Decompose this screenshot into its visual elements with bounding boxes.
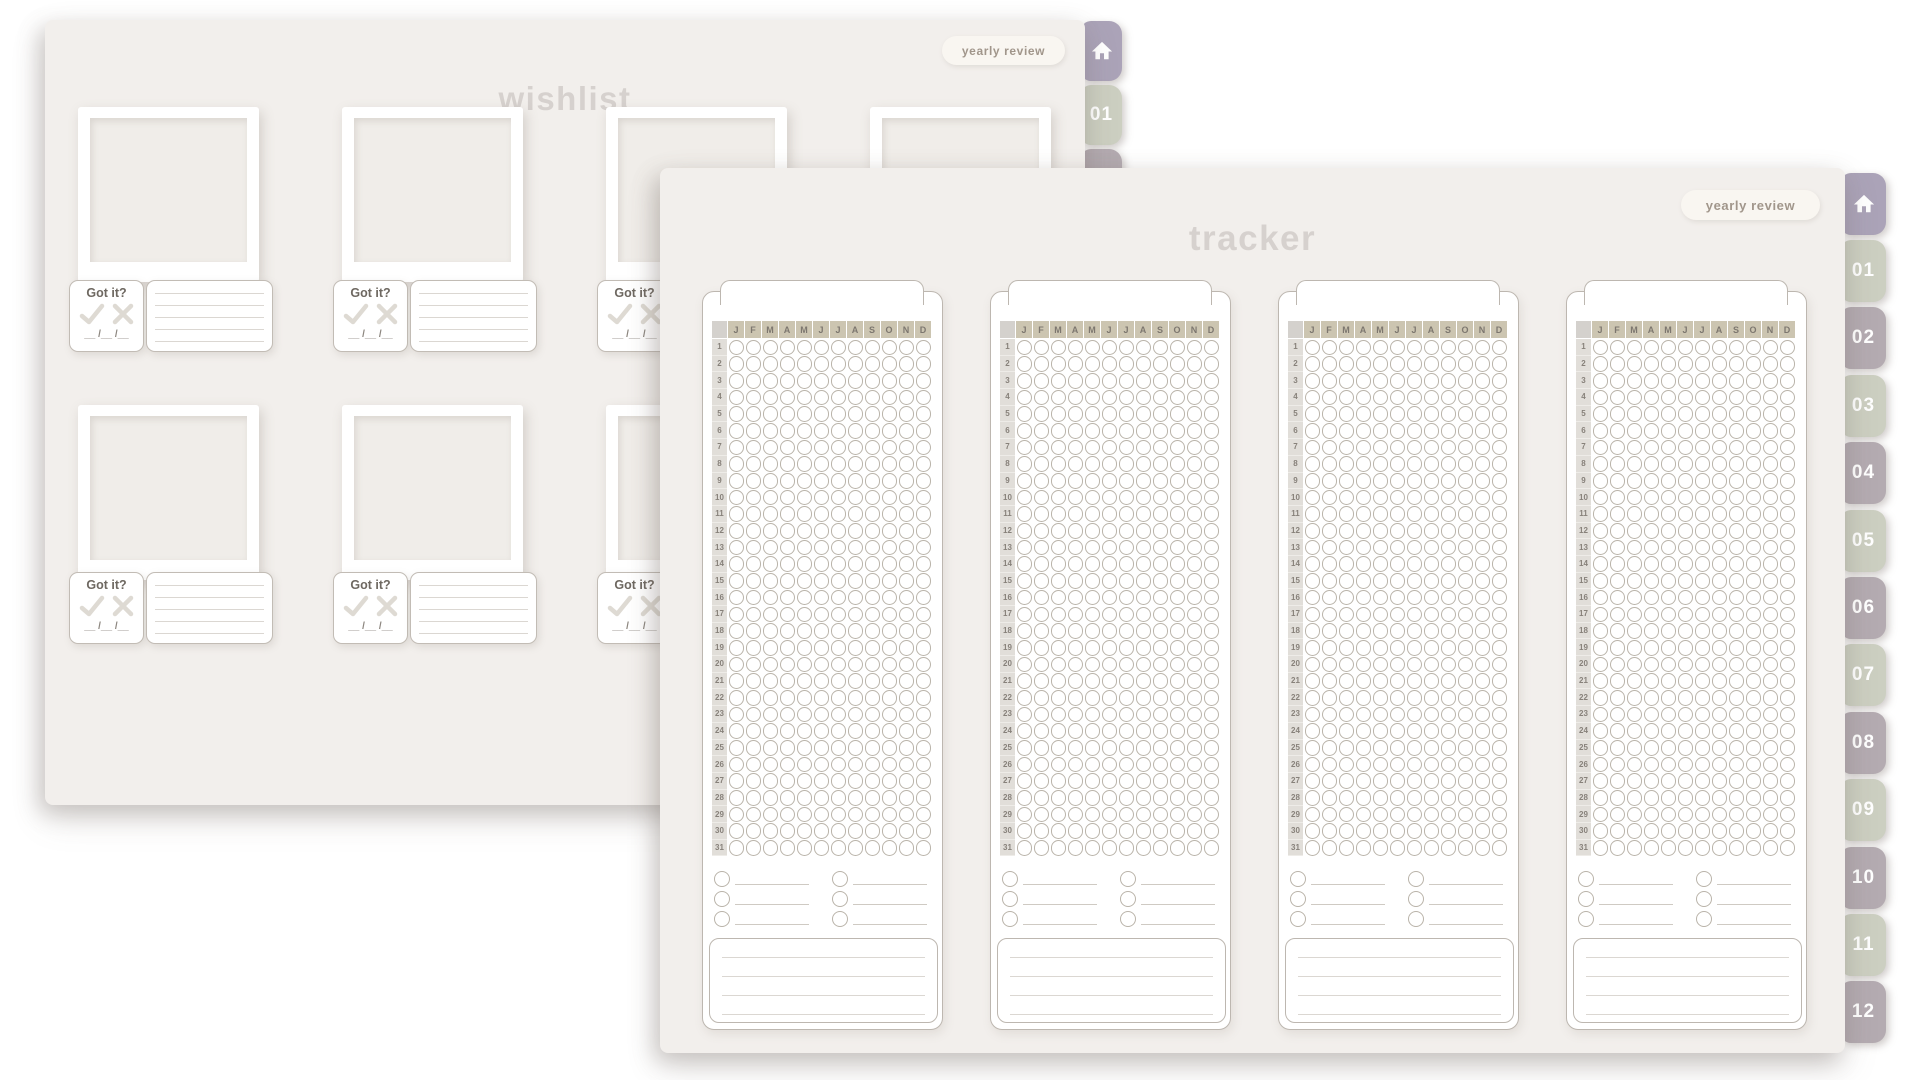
- day-circle[interactable]: [1136, 506, 1152, 522]
- got-it-date-line[interactable]: __ /__ /__: [334, 329, 407, 340]
- day-circle[interactable]: [1187, 640, 1203, 656]
- day-circle[interactable]: [1153, 790, 1169, 806]
- day-circle[interactable]: [1102, 740, 1118, 756]
- day-circle[interactable]: [1712, 740, 1728, 756]
- day-circle[interactable]: [1475, 607, 1491, 623]
- day-circle[interactable]: [1119, 607, 1135, 623]
- day-circle[interactable]: [1085, 740, 1101, 756]
- day-circle[interactable]: [1763, 740, 1779, 756]
- tab-02[interactable]: 02: [1841, 307, 1886, 369]
- day-circle[interactable]: [1356, 406, 1372, 422]
- day-circle[interactable]: [882, 490, 898, 506]
- day-circle[interactable]: [1373, 356, 1389, 372]
- day-circle[interactable]: [1780, 790, 1796, 806]
- day-circle[interactable]: [1051, 340, 1067, 356]
- day-circle[interactable]: [1068, 773, 1084, 789]
- day-circle[interactable]: [865, 556, 881, 572]
- day-circle[interactable]: [865, 406, 881, 422]
- day-circle[interactable]: [814, 790, 830, 806]
- day-circle[interactable]: [1678, 823, 1694, 839]
- day-circle[interactable]: [1322, 373, 1338, 389]
- day-circle[interactable]: [1424, 456, 1440, 472]
- day-circle[interactable]: [1204, 406, 1220, 422]
- day-circle[interactable]: [1593, 807, 1609, 823]
- day-circle[interactable]: [1424, 790, 1440, 806]
- day-circle[interactable]: [1746, 373, 1762, 389]
- day-circle[interactable]: [1153, 573, 1169, 589]
- day-circle[interactable]: [1322, 473, 1338, 489]
- day-circle[interactable]: [1373, 423, 1389, 439]
- day-circle[interactable]: [814, 640, 830, 656]
- day-circle[interactable]: [1627, 690, 1643, 706]
- day-circle[interactable]: [1441, 473, 1457, 489]
- day-circle[interactable]: [1153, 523, 1169, 539]
- day-circle[interactable]: [1322, 707, 1338, 723]
- day-circle[interactable]: [1356, 790, 1372, 806]
- day-circle[interactable]: [882, 556, 898, 572]
- day-circle[interactable]: [848, 640, 864, 656]
- day-circle[interactable]: [1136, 390, 1152, 406]
- day-circle[interactable]: [1322, 590, 1338, 606]
- day-circle[interactable]: [1441, 690, 1457, 706]
- day-circle[interactable]: [1746, 473, 1762, 489]
- day-circle[interactable]: [1661, 573, 1677, 589]
- day-circle[interactable]: [746, 473, 762, 489]
- day-circle[interactable]: [1441, 373, 1457, 389]
- day-circle[interactable]: [1695, 707, 1711, 723]
- day-circle[interactable]: [1780, 506, 1796, 522]
- day-circle[interactable]: [1593, 390, 1609, 406]
- tab-08[interactable]: 08: [1841, 712, 1886, 774]
- day-circle[interactable]: [1475, 540, 1491, 556]
- day-circle[interactable]: [746, 757, 762, 773]
- day-circle[interactable]: [1627, 773, 1643, 789]
- day-circle[interactable]: [1085, 623, 1101, 639]
- day-circle[interactable]: [1153, 707, 1169, 723]
- day-circle[interactable]: [729, 456, 745, 472]
- day-circle[interactable]: [1593, 840, 1609, 856]
- legend-line[interactable]: [1311, 884, 1385, 885]
- day-circle[interactable]: [1119, 690, 1135, 706]
- day-circle[interactable]: [1475, 707, 1491, 723]
- day-circle[interactable]: [1492, 440, 1508, 456]
- day-circle[interactable]: [746, 673, 762, 689]
- day-circle[interactable]: [1661, 356, 1677, 372]
- day-circle[interactable]: [1102, 723, 1118, 739]
- day-circle[interactable]: [1458, 790, 1474, 806]
- day-circle[interactable]: [916, 390, 932, 406]
- day-circle[interactable]: [746, 573, 762, 589]
- legend-circle[interactable]: [1002, 911, 1018, 927]
- day-circle[interactable]: [1441, 607, 1457, 623]
- day-circle[interactable]: [1187, 540, 1203, 556]
- day-circle[interactable]: [1441, 406, 1457, 422]
- day-circle[interactable]: [1085, 840, 1101, 856]
- day-circle[interactable]: [1322, 340, 1338, 356]
- day-circle[interactable]: [1661, 790, 1677, 806]
- day-circle[interactable]: [1610, 590, 1626, 606]
- day-circle[interactable]: [814, 840, 830, 856]
- day-circle[interactable]: [1305, 607, 1321, 623]
- day-circle[interactable]: [797, 790, 813, 806]
- day-circle[interactable]: [1644, 590, 1660, 606]
- tab-home[interactable]: [1081, 21, 1122, 81]
- day-circle[interactable]: [797, 390, 813, 406]
- day-circle[interactable]: [1441, 757, 1457, 773]
- day-circle[interactable]: [1170, 573, 1186, 589]
- day-circle[interactable]: [1593, 523, 1609, 539]
- day-circle[interactable]: [848, 590, 864, 606]
- day-circle[interactable]: [1017, 573, 1033, 589]
- day-circle[interactable]: [848, 406, 864, 422]
- day-circle[interactable]: [916, 623, 932, 639]
- day-circle[interactable]: [1017, 723, 1033, 739]
- day-circle[interactable]: [1424, 840, 1440, 856]
- day-circle[interactable]: [1373, 840, 1389, 856]
- day-circle[interactable]: [1153, 490, 1169, 506]
- day-circle[interactable]: [1424, 773, 1440, 789]
- day-circle[interactable]: [797, 423, 813, 439]
- day-circle[interactable]: [797, 490, 813, 506]
- day-circle[interactable]: [1339, 406, 1355, 422]
- day-circle[interactable]: [916, 456, 932, 472]
- day-circle[interactable]: [1661, 590, 1677, 606]
- day-circle[interactable]: [1627, 556, 1643, 572]
- day-circle[interactable]: [1678, 340, 1694, 356]
- day-circle[interactable]: [1407, 673, 1423, 689]
- day-circle[interactable]: [797, 556, 813, 572]
- day-circle[interactable]: [916, 490, 932, 506]
- check-icon[interactable]: [343, 594, 369, 618]
- day-circle[interactable]: [1678, 673, 1694, 689]
- day-circle[interactable]: [1746, 607, 1762, 623]
- day-circle[interactable]: [1187, 607, 1203, 623]
- day-circle[interactable]: [1763, 640, 1779, 656]
- day-circle[interactable]: [797, 373, 813, 389]
- day-circle[interactable]: [1746, 807, 1762, 823]
- day-circle[interactable]: [1390, 707, 1406, 723]
- day-circle[interactable]: [1339, 523, 1355, 539]
- day-circle[interactable]: [899, 757, 915, 773]
- day-circle[interactable]: [1424, 640, 1440, 656]
- day-circle[interactable]: [1763, 773, 1779, 789]
- day-circle[interactable]: [1339, 506, 1355, 522]
- day-circle[interactable]: [814, 406, 830, 422]
- day-circle[interactable]: [1119, 757, 1135, 773]
- day-circle[interactable]: [1034, 506, 1050, 522]
- day-circle[interactable]: [1017, 440, 1033, 456]
- day-circle[interactable]: [1119, 473, 1135, 489]
- day-circle[interactable]: [1610, 623, 1626, 639]
- day-circle[interactable]: [1204, 840, 1220, 856]
- day-circle[interactable]: [729, 823, 745, 839]
- day-circle[interactable]: [1661, 657, 1677, 673]
- day-circle[interactable]: [1644, 540, 1660, 556]
- legend-line[interactable]: [1311, 924, 1385, 925]
- day-circle[interactable]: [814, 607, 830, 623]
- day-circle[interactable]: [1170, 823, 1186, 839]
- day-circle[interactable]: [797, 673, 813, 689]
- day-circle[interactable]: [729, 640, 745, 656]
- legend-line[interactable]: [1429, 924, 1503, 925]
- day-circle[interactable]: [1204, 773, 1220, 789]
- day-circle[interactable]: [1475, 723, 1491, 739]
- day-circle[interactable]: [814, 356, 830, 372]
- day-circle[interactable]: [848, 673, 864, 689]
- day-circle[interactable]: [1746, 456, 1762, 472]
- day-circle[interactable]: [729, 807, 745, 823]
- day-circle[interactable]: [1136, 590, 1152, 606]
- day-circle[interactable]: [1627, 707, 1643, 723]
- day-circle[interactable]: [1017, 790, 1033, 806]
- day-circle[interactable]: [1051, 723, 1067, 739]
- day-circle[interactable]: [1593, 506, 1609, 522]
- day-circle[interactable]: [1017, 506, 1033, 522]
- day-circle[interactable]: [831, 556, 847, 572]
- wishlist-note-card[interactable]: [146, 572, 273, 644]
- day-circle[interactable]: [814, 623, 830, 639]
- day-circle[interactable]: [1627, 840, 1643, 856]
- day-circle[interactable]: [1644, 456, 1660, 472]
- legend-circle[interactable]: [1696, 911, 1712, 927]
- day-circle[interactable]: [763, 556, 779, 572]
- day-circle[interactable]: [1678, 740, 1694, 756]
- day-circle[interactable]: [1170, 456, 1186, 472]
- day-circle[interactable]: [780, 807, 796, 823]
- legend-line[interactable]: [1141, 904, 1215, 905]
- day-circle[interactable]: [1424, 723, 1440, 739]
- day-circle[interactable]: [865, 423, 881, 439]
- day-circle[interactable]: [831, 406, 847, 422]
- day-circle[interactable]: [1593, 456, 1609, 472]
- day-circle[interactable]: [1373, 340, 1389, 356]
- day-circle[interactable]: [1424, 590, 1440, 606]
- day-circle[interactable]: [1339, 723, 1355, 739]
- day-circle[interactable]: [1119, 623, 1135, 639]
- day-circle[interactable]: [1644, 373, 1660, 389]
- day-circle[interactable]: [1492, 607, 1508, 623]
- day-circle[interactable]: [1746, 523, 1762, 539]
- day-circle[interactable]: [729, 390, 745, 406]
- day-circle[interactable]: [916, 657, 932, 673]
- day-circle[interactable]: [729, 623, 745, 639]
- legend-circle[interactable]: [1408, 891, 1424, 907]
- day-circle[interactable]: [1763, 440, 1779, 456]
- day-circle[interactable]: [865, 690, 881, 706]
- day-circle[interactable]: [1153, 473, 1169, 489]
- day-circle[interactable]: [865, 473, 881, 489]
- day-circle[interactable]: [1356, 673, 1372, 689]
- day-circle[interactable]: [1627, 540, 1643, 556]
- day-circle[interactable]: [746, 607, 762, 623]
- day-circle[interactable]: [763, 740, 779, 756]
- day-circle[interactable]: [780, 773, 796, 789]
- day-circle[interactable]: [1763, 340, 1779, 356]
- day-circle[interactable]: [1322, 757, 1338, 773]
- day-circle[interactable]: [1458, 640, 1474, 656]
- legend-circle[interactable]: [714, 891, 730, 907]
- day-circle[interactable]: [882, 390, 898, 406]
- day-circle[interactable]: [1068, 356, 1084, 372]
- day-circle[interactable]: [1136, 757, 1152, 773]
- day-circle[interactable]: [1034, 456, 1050, 472]
- check-icon[interactable]: [607, 594, 633, 618]
- day-circle[interactable]: [1763, 506, 1779, 522]
- day-circle[interactable]: [899, 573, 915, 589]
- day-circle[interactable]: [1305, 373, 1321, 389]
- day-circle[interactable]: [865, 340, 881, 356]
- day-circle[interactable]: [1119, 440, 1135, 456]
- day-circle[interactable]: [1661, 456, 1677, 472]
- day-circle[interactable]: [1424, 506, 1440, 522]
- day-circle[interactable]: [916, 690, 932, 706]
- day-circle[interactable]: [916, 673, 932, 689]
- day-circle[interactable]: [882, 356, 898, 372]
- day-circle[interactable]: [1678, 540, 1694, 556]
- day-circle[interactable]: [1102, 556, 1118, 572]
- day-circle[interactable]: [916, 340, 932, 356]
- day-circle[interactable]: [1153, 623, 1169, 639]
- legend-line[interactable]: [735, 884, 809, 885]
- day-circle[interactable]: [1729, 657, 1745, 673]
- day-circle[interactable]: [831, 440, 847, 456]
- day-circle[interactable]: [1373, 773, 1389, 789]
- day-circle[interactable]: [1119, 390, 1135, 406]
- day-circle[interactable]: [1339, 473, 1355, 489]
- day-circle[interactable]: [763, 390, 779, 406]
- day-circle[interactable]: [729, 573, 745, 589]
- day-circle[interactable]: [1068, 523, 1084, 539]
- day-circle[interactable]: [1644, 607, 1660, 623]
- day-circle[interactable]: [1085, 390, 1101, 406]
- day-circle[interactable]: [1390, 356, 1406, 372]
- day-circle[interactable]: [1187, 773, 1203, 789]
- day-circle[interactable]: [746, 790, 762, 806]
- day-circle[interactable]: [1153, 773, 1169, 789]
- legend-line[interactable]: [853, 884, 927, 885]
- day-circle[interactable]: [1729, 623, 1745, 639]
- day-circle[interactable]: [1763, 540, 1779, 556]
- day-circle[interactable]: [1627, 790, 1643, 806]
- day-circle[interactable]: [1339, 607, 1355, 623]
- day-circle[interactable]: [729, 473, 745, 489]
- day-circle[interactable]: [1780, 607, 1796, 623]
- day-circle[interactable]: [1119, 356, 1135, 372]
- day-circle[interactable]: [1407, 740, 1423, 756]
- day-circle[interactable]: [865, 823, 881, 839]
- day-circle[interactable]: [1119, 657, 1135, 673]
- day-circle[interactable]: [1322, 723, 1338, 739]
- polaroid-photo-slot[interactable]: [90, 118, 247, 262]
- day-circle[interactable]: [1390, 723, 1406, 739]
- day-circle[interactable]: [1068, 573, 1084, 589]
- day-circle[interactable]: [1085, 790, 1101, 806]
- day-circle[interactable]: [746, 523, 762, 539]
- day-circle[interactable]: [1305, 556, 1321, 572]
- day-circle[interactable]: [1492, 456, 1508, 472]
- day-circle[interactable]: [1712, 540, 1728, 556]
- day-circle[interactable]: [1695, 790, 1711, 806]
- day-circle[interactable]: [1390, 390, 1406, 406]
- day-circle[interactable]: [1136, 373, 1152, 389]
- day-circle[interactable]: [1339, 340, 1355, 356]
- day-circle[interactable]: [1136, 840, 1152, 856]
- day-circle[interactable]: [831, 623, 847, 639]
- day-circle[interactable]: [1712, 490, 1728, 506]
- day-circle[interactable]: [1661, 506, 1677, 522]
- day-circle[interactable]: [882, 523, 898, 539]
- day-circle[interactable]: [780, 823, 796, 839]
- day-circle[interactable]: [1068, 790, 1084, 806]
- day-circle[interactable]: [1661, 523, 1677, 539]
- day-circle[interactable]: [1610, 690, 1626, 706]
- day-circle[interactable]: [1661, 340, 1677, 356]
- day-circle[interactable]: [1305, 390, 1321, 406]
- day-circle[interactable]: [1424, 673, 1440, 689]
- day-circle[interactable]: [1780, 740, 1796, 756]
- day-circle[interactable]: [797, 406, 813, 422]
- day-circle[interactable]: [1424, 473, 1440, 489]
- day-circle[interactable]: [1492, 773, 1508, 789]
- day-circle[interactable]: [1746, 340, 1762, 356]
- day-circle[interactable]: [848, 757, 864, 773]
- day-circle[interactable]: [1102, 590, 1118, 606]
- day-circle[interactable]: [763, 523, 779, 539]
- day-circle[interactable]: [1356, 423, 1372, 439]
- day-circle[interactable]: [1661, 540, 1677, 556]
- day-circle[interactable]: [1322, 807, 1338, 823]
- day-circle[interactable]: [763, 540, 779, 556]
- day-circle[interactable]: [848, 773, 864, 789]
- day-circle[interactable]: [1458, 673, 1474, 689]
- day-circle[interactable]: [1712, 757, 1728, 773]
- day-circle[interactable]: [1475, 440, 1491, 456]
- day-circle[interactable]: [1373, 740, 1389, 756]
- day-circle[interactable]: [746, 773, 762, 789]
- day-circle[interactable]: [1356, 373, 1372, 389]
- day-circle[interactable]: [1780, 773, 1796, 789]
- got-it-date-line[interactable]: __ /__ /__: [70, 329, 143, 340]
- day-circle[interactable]: [1610, 773, 1626, 789]
- day-circle[interactable]: [899, 790, 915, 806]
- day-circle[interactable]: [1204, 490, 1220, 506]
- day-circle[interactable]: [1610, 640, 1626, 656]
- day-circle[interactable]: [1729, 640, 1745, 656]
- day-circle[interactable]: [814, 556, 830, 572]
- day-circle[interactable]: [763, 506, 779, 522]
- day-circle[interactable]: [780, 840, 796, 856]
- day-circle[interactable]: [1136, 640, 1152, 656]
- day-circle[interactable]: [1390, 573, 1406, 589]
- day-circle[interactable]: [1593, 473, 1609, 489]
- day-circle[interactable]: [1424, 757, 1440, 773]
- day-circle[interactable]: [848, 556, 864, 572]
- day-circle[interactable]: [1170, 540, 1186, 556]
- day-circle[interactable]: [1763, 456, 1779, 472]
- day-circle[interactable]: [882, 340, 898, 356]
- day-circle[interactable]: [1390, 473, 1406, 489]
- day-circle[interactable]: [899, 673, 915, 689]
- day-circle[interactable]: [1187, 840, 1203, 856]
- day-circle[interactable]: [899, 356, 915, 372]
- day-circle[interactable]: [1085, 707, 1101, 723]
- legend-circle[interactable]: [714, 911, 730, 927]
- day-circle[interactable]: [916, 790, 932, 806]
- legend-circle[interactable]: [1290, 871, 1306, 887]
- day-circle[interactable]: [1458, 390, 1474, 406]
- day-circle[interactable]: [916, 540, 932, 556]
- day-circle[interactable]: [1305, 773, 1321, 789]
